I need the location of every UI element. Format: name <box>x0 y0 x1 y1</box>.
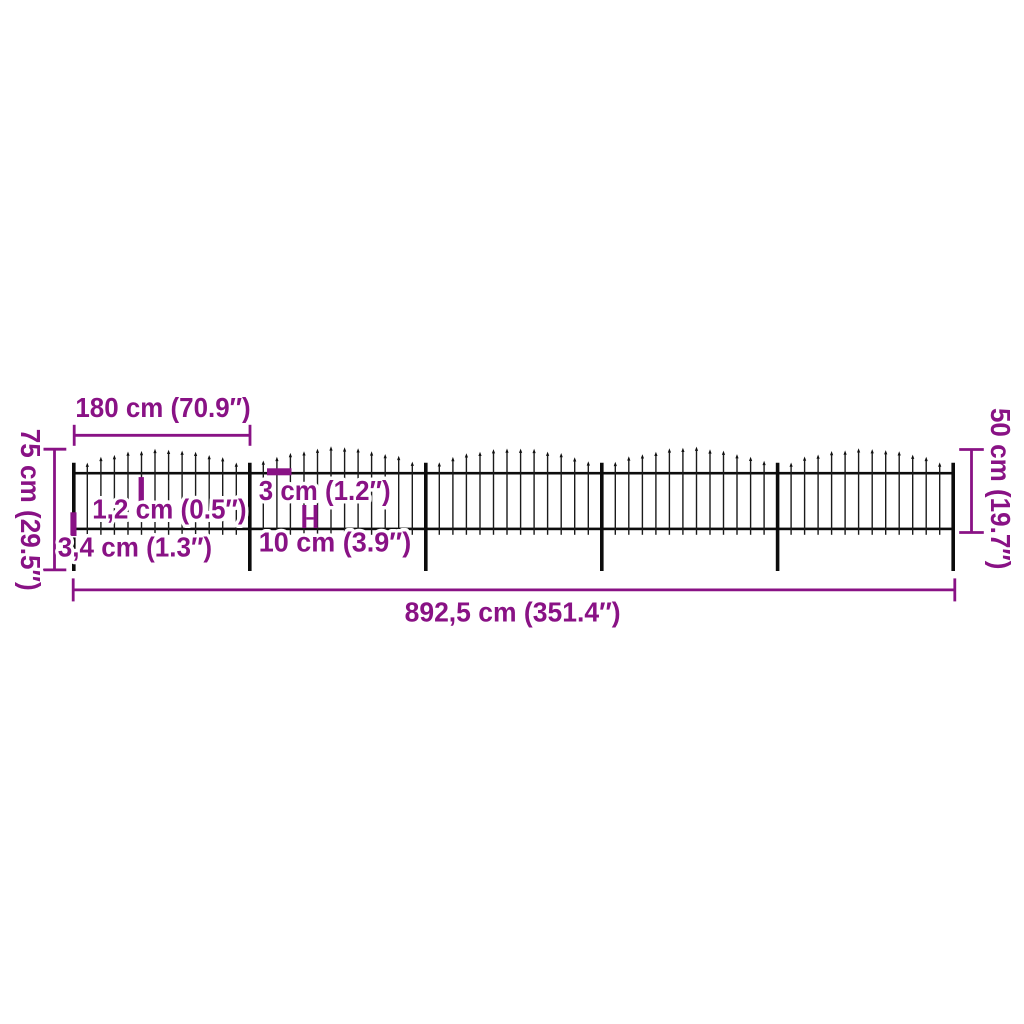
svg-text:892,5 cm (351.4″): 892,5 cm (351.4″) <box>405 596 621 627</box>
svg-text:3 cm (1.2″): 3 cm (1.2″) <box>259 475 391 506</box>
svg-text:75 cm (29.5″): 75 cm (29.5″) <box>15 429 46 591</box>
svg-text:1,2 cm (0.5″): 1,2 cm (0.5″) <box>92 494 246 525</box>
svg-text:50 cm (19.7″): 50 cm (19.7″) <box>985 408 1016 570</box>
svg-text:180 cm (70.9″): 180 cm (70.9″) <box>75 392 250 423</box>
svg-text:3,4 cm (1.3″): 3,4 cm (1.3″) <box>58 531 212 562</box>
svg-text:10 cm (3.9″): 10 cm (3.9″) <box>259 527 411 558</box>
